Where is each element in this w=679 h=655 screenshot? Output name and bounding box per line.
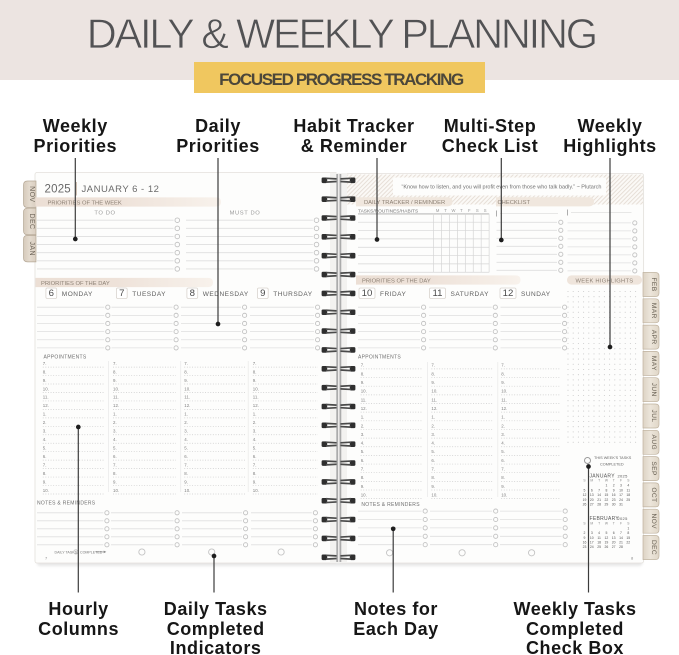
svg-text:S: S <box>484 208 487 213</box>
svg-text:DAILY TRACKER / REMINDER: DAILY TRACKER / REMINDER <box>364 200 445 206</box>
svg-text:10.: 10. <box>184 488 190 493</box>
svg-text:7.: 7. <box>253 462 257 467</box>
svg-text:25: 25 <box>626 498 630 502</box>
svg-text:6: 6 <box>591 488 593 492</box>
svg-text:10.: 10. <box>43 386 49 391</box>
svg-text:SATURDAY: SATURDAY <box>451 291 490 298</box>
svg-text:11.: 11. <box>431 397 437 402</box>
svg-text:19: 19 <box>605 540 609 544</box>
svg-text:1: 1 <box>627 526 629 530</box>
svg-text:5: 5 <box>584 488 586 492</box>
svg-text:8.: 8. <box>253 369 257 374</box>
svg-text:CHECKLIST: CHECKLIST <box>498 200 531 206</box>
svg-text:11.: 11. <box>43 395 49 400</box>
svg-text:JANUARY 6 - 12: JANUARY 6 - 12 <box>82 184 160 195</box>
svg-text:T: T <box>598 479 600 483</box>
svg-text:10.: 10. <box>253 386 259 391</box>
svg-text:18: 18 <box>597 540 601 544</box>
svg-text:7: 7 <box>620 531 622 535</box>
svg-text:12.: 12. <box>253 403 259 408</box>
svg-text:10.: 10. <box>253 488 259 493</box>
svg-text:7.: 7. <box>43 462 47 467</box>
svg-text:3.: 3. <box>361 432 365 437</box>
svg-text:1.: 1. <box>113 412 117 417</box>
svg-text:8.: 8. <box>431 475 435 480</box>
svg-text:F: F <box>620 521 622 525</box>
svg-text:10.: 10. <box>431 389 437 394</box>
svg-text:1.: 1. <box>184 412 188 417</box>
svg-text:19: 19 <box>583 498 587 502</box>
svg-text:3.: 3. <box>43 429 47 434</box>
svg-text:S: S <box>476 208 479 213</box>
svg-text:15: 15 <box>605 493 609 497</box>
svg-text:17: 17 <box>619 493 623 497</box>
svg-text:29: 29 <box>605 503 609 507</box>
svg-text:5.: 5. <box>184 446 188 451</box>
svg-text:9.: 9. <box>501 380 505 385</box>
svg-text:NOV: NOV <box>650 513 657 529</box>
svg-text:PRIORITIES OF THE WEEK: PRIORITIES OF THE WEEK <box>48 200 122 206</box>
svg-text:11.: 11. <box>501 397 507 402</box>
svg-text:3: 3 <box>591 531 593 535</box>
svg-text:2.: 2. <box>113 420 117 425</box>
svg-text:T: T <box>613 479 615 483</box>
svg-text:APR: APR <box>650 330 657 345</box>
svg-text:3.: 3. <box>253 429 257 434</box>
svg-text:9.: 9. <box>113 378 117 383</box>
svg-text:4.: 4. <box>43 437 47 442</box>
svg-text:1: 1 <box>605 484 607 488</box>
svg-text:10.: 10. <box>501 389 507 394</box>
svg-text:22: 22 <box>605 498 609 502</box>
svg-text:7.: 7. <box>113 462 117 467</box>
svg-text:7.: 7. <box>184 361 188 366</box>
svg-text:15: 15 <box>626 536 630 540</box>
svg-text:12.: 12. <box>113 403 119 408</box>
svg-text:3.: 3. <box>431 432 435 437</box>
svg-text:WEDNESDAY: WEDNESDAY <box>203 291 249 298</box>
svg-text:6.: 6. <box>113 454 117 459</box>
svg-text:12.: 12. <box>431 406 437 411</box>
svg-text:4: 4 <box>598 531 600 535</box>
svg-text:8.: 8. <box>43 369 47 374</box>
svg-text:27: 27 <box>612 545 616 549</box>
svg-text:26: 26 <box>583 503 587 507</box>
svg-text:3.: 3. <box>113 429 117 434</box>
svg-text:TUESDAY: TUESDAY <box>132 291 166 298</box>
svg-text:5: 5 <box>605 531 607 535</box>
svg-text:1.: 1. <box>253 412 257 417</box>
svg-text:9.: 9. <box>113 479 117 484</box>
svg-text:APPOINTMENTS: APPOINTMENTS <box>358 354 401 360</box>
svg-text:5.: 5. <box>43 446 47 451</box>
svg-text:THURSDAY: THURSDAY <box>273 291 312 298</box>
svg-text:7.: 7. <box>431 467 435 472</box>
svg-text:2.: 2. <box>253 420 257 425</box>
svg-text:10.: 10. <box>113 488 119 493</box>
svg-text:W: W <box>451 208 455 213</box>
svg-text:JUL: JUL <box>650 410 657 423</box>
svg-text:1.: 1. <box>361 415 365 420</box>
svg-text:9.: 9. <box>501 484 505 489</box>
svg-text:10: 10 <box>619 488 623 492</box>
svg-text:12.: 12. <box>43 403 49 408</box>
svg-text:COMPLETED: COMPLETED <box>600 462 624 466</box>
svg-text:10.: 10. <box>361 389 367 394</box>
svg-text:10.: 10. <box>113 386 119 391</box>
svg-text:6.: 6. <box>361 458 365 463</box>
svg-text:28: 28 <box>619 545 623 549</box>
svg-text:2025: 2025 <box>618 473 629 478</box>
svg-text:16: 16 <box>583 540 587 544</box>
svg-text:TASKS/ROUTINES/HABITS: TASKS/ROUTINES/HABITS <box>358 208 418 214</box>
svg-text:SEP: SEP <box>650 461 657 476</box>
svg-text:7: 7 <box>598 488 600 492</box>
svg-text:5.: 5. <box>361 449 365 454</box>
svg-text:T: T <box>444 208 447 213</box>
svg-text:31: 31 <box>619 503 623 507</box>
svg-text:6.: 6. <box>184 454 188 459</box>
svg-text:8.: 8. <box>113 369 117 374</box>
svg-text:8.: 8. <box>501 371 505 376</box>
svg-text:20: 20 <box>612 540 616 544</box>
svg-text:8: 8 <box>190 288 195 299</box>
svg-text:13: 13 <box>590 493 594 497</box>
svg-text:21: 21 <box>597 498 601 502</box>
svg-text:NOTES & REMINDERS: NOTES & REMINDERS <box>361 502 420 508</box>
svg-text:4.: 4. <box>253 437 257 442</box>
svg-text:10: 10 <box>362 288 373 299</box>
svg-text:1.: 1. <box>43 412 47 417</box>
svg-text:8.: 8. <box>184 471 188 476</box>
svg-text:4.: 4. <box>184 437 188 442</box>
svg-text:7.: 7. <box>431 363 435 368</box>
svg-text:2025: 2025 <box>618 516 629 521</box>
svg-text:DEC: DEC <box>28 214 35 230</box>
svg-text:12.: 12. <box>184 403 190 408</box>
svg-text:T: T <box>598 521 600 525</box>
svg-text:3.: 3. <box>184 429 188 434</box>
svg-text:7.: 7. <box>43 361 47 366</box>
svg-text:MAR: MAR <box>650 303 657 319</box>
svg-text:10.: 10. <box>184 386 190 391</box>
svg-text:FEB: FEB <box>650 277 657 291</box>
svg-text:11.: 11. <box>184 395 190 400</box>
svg-text:2.: 2. <box>501 423 505 428</box>
svg-text:OCT: OCT <box>650 487 657 502</box>
svg-text:8.: 8. <box>501 475 505 480</box>
svg-text:18: 18 <box>626 493 630 497</box>
svg-text:6.: 6. <box>43 454 47 459</box>
svg-text:M: M <box>436 208 440 213</box>
svg-text:7.: 7. <box>253 361 257 366</box>
svg-text:3.: 3. <box>501 432 505 437</box>
svg-text:4: 4 <box>627 484 629 488</box>
svg-text:4.: 4. <box>361 441 365 446</box>
svg-text:23: 23 <box>612 498 616 502</box>
svg-text:14: 14 <box>619 536 623 540</box>
svg-text:8.: 8. <box>43 471 47 476</box>
svg-text:2.: 2. <box>43 420 47 425</box>
svg-text:12: 12 <box>583 493 587 497</box>
svg-text:6: 6 <box>613 531 615 535</box>
svg-text:JUN: JUN <box>650 383 657 397</box>
svg-text:5.: 5. <box>253 446 257 451</box>
svg-text:NOV: NOV <box>28 186 35 202</box>
svg-text:2.: 2. <box>361 423 365 428</box>
svg-text:FRIDAY: FRIDAY <box>380 291 407 298</box>
svg-text:MAY: MAY <box>650 356 657 371</box>
svg-text:7.: 7. <box>184 462 188 467</box>
svg-text:8: 8 <box>627 531 629 535</box>
svg-text:2: 2 <box>584 531 586 535</box>
svg-text:SUNDAY: SUNDAY <box>521 291 551 298</box>
svg-text:11: 11 <box>597 536 601 540</box>
svg-text:11: 11 <box>627 488 631 492</box>
svg-text:THIS WEEK'S TASKS: THIS WEEK'S TASKS <box>594 456 632 460</box>
svg-text:PRIORITIES OF THE DAY: PRIORITIES OF THE DAY <box>41 281 110 287</box>
svg-text:T: T <box>613 521 615 525</box>
svg-text:9: 9 <box>260 288 265 299</box>
svg-text:1.: 1. <box>501 415 505 420</box>
svg-text:9.: 9. <box>184 479 188 484</box>
svg-text:24: 24 <box>619 498 623 502</box>
svg-text:26: 26 <box>605 545 609 549</box>
svg-text:JAN: JAN <box>28 241 35 255</box>
svg-text:8.: 8. <box>431 371 435 376</box>
svg-text:7: 7 <box>119 288 124 299</box>
svg-text:9.: 9. <box>431 380 435 385</box>
svg-text:M: M <box>590 521 593 525</box>
svg-text:2: 2 <box>613 484 615 488</box>
svg-text:12.: 12. <box>361 406 367 411</box>
svg-text:9.: 9. <box>184 378 188 383</box>
svg-text:17: 17 <box>590 540 594 544</box>
svg-text:5.: 5. <box>431 449 435 454</box>
svg-text:7.: 7. <box>113 361 117 366</box>
svg-text:8.: 8. <box>361 475 365 480</box>
svg-text:6: 6 <box>49 288 54 299</box>
svg-text:WEEK HIGHLIGHTS: WEEK HIGHLIGHTS <box>576 278 634 284</box>
svg-text:7.: 7. <box>501 467 505 472</box>
svg-text:DEC: DEC <box>650 540 657 555</box>
svg-text:2.: 2. <box>431 423 435 428</box>
svg-text:10.: 10. <box>43 488 49 493</box>
svg-text:10.: 10. <box>501 492 507 497</box>
svg-text:MONDAY: MONDAY <box>62 291 93 298</box>
svg-text:11.: 11. <box>113 395 119 400</box>
svg-text:2.: 2. <box>184 420 188 425</box>
svg-text:12.: 12. <box>501 406 507 411</box>
svg-text:TO DO: TO DO <box>94 211 115 217</box>
svg-text:F: F <box>468 208 471 213</box>
svg-text:11.: 11. <box>253 395 259 400</box>
svg-text:9.: 9. <box>253 378 257 383</box>
svg-text:10.: 10. <box>361 492 367 497</box>
svg-text:9: 9 <box>613 488 615 492</box>
svg-text:6.: 6. <box>501 458 505 463</box>
svg-text:22: 22 <box>626 540 630 544</box>
svg-text:9.: 9. <box>43 479 47 484</box>
svg-text:27: 27 <box>590 503 594 507</box>
svg-text:25: 25 <box>597 545 601 549</box>
svg-text:8.: 8. <box>184 369 188 374</box>
svg-text:12: 12 <box>503 288 514 299</box>
svg-text:20: 20 <box>590 498 594 502</box>
svg-text:11: 11 <box>433 288 443 299</box>
svg-text:T: T <box>460 208 463 213</box>
svg-text:11.: 11. <box>361 397 367 402</box>
svg-text:1.: 1. <box>431 415 435 420</box>
svg-text:28: 28 <box>597 503 601 507</box>
svg-text:APPOINTMENTS: APPOINTMENTS <box>44 354 87 360</box>
svg-text:9.: 9. <box>361 484 365 489</box>
svg-text:6.: 6. <box>253 454 257 459</box>
svg-text:7.: 7. <box>361 467 365 472</box>
svg-text:24: 24 <box>590 545 594 549</box>
svg-text:21: 21 <box>619 540 623 544</box>
svg-text:7.: 7. <box>501 363 505 368</box>
svg-text:AUG: AUG <box>650 435 657 451</box>
svg-text:5.: 5. <box>113 446 117 451</box>
svg-text:F: F <box>620 479 622 483</box>
svg-text:12: 12 <box>605 536 609 540</box>
svg-text:14: 14 <box>597 493 601 497</box>
svg-text:NOTES & REMINDERS: NOTES & REMINDERS <box>37 500 96 506</box>
svg-text:9: 9 <box>584 536 586 540</box>
svg-text:9.: 9. <box>43 378 47 383</box>
svg-text:JANUARY: JANUARY <box>590 473 616 479</box>
svg-text:M: M <box>590 479 593 483</box>
svg-text:23: 23 <box>583 545 587 549</box>
svg-text:3: 3 <box>620 484 622 488</box>
svg-text:7.: 7. <box>361 363 365 368</box>
svg-text:9.: 9. <box>431 484 435 489</box>
svg-text:8.: 8. <box>113 471 117 476</box>
svg-text:2025: 2025 <box>45 183 71 195</box>
svg-text:PRIORITIES OF THE DAY: PRIORITIES OF THE DAY <box>362 278 431 284</box>
svg-text:6.: 6. <box>431 458 435 463</box>
svg-text:MUST DO: MUST DO <box>230 211 261 217</box>
svg-text:5.: 5. <box>501 449 505 454</box>
svg-text:4.: 4. <box>501 441 505 446</box>
svg-text:10: 10 <box>590 536 594 540</box>
svg-text:16: 16 <box>612 493 616 497</box>
svg-text:13: 13 <box>612 536 616 540</box>
svg-text:30: 30 <box>612 503 616 507</box>
svg-text:COMPLETED: COMPLETED <box>80 550 103 554</box>
svg-text:4.: 4. <box>113 437 117 442</box>
svg-text:4.: 4. <box>431 441 435 446</box>
svg-text:9.: 9. <box>361 380 365 385</box>
svg-text:8: 8 <box>605 488 607 492</box>
svg-text:9.: 9. <box>253 479 257 484</box>
svg-text:8.: 8. <box>361 371 365 376</box>
svg-text:10.: 10. <box>431 492 437 497</box>
svg-text:8.: 8. <box>253 471 257 476</box>
